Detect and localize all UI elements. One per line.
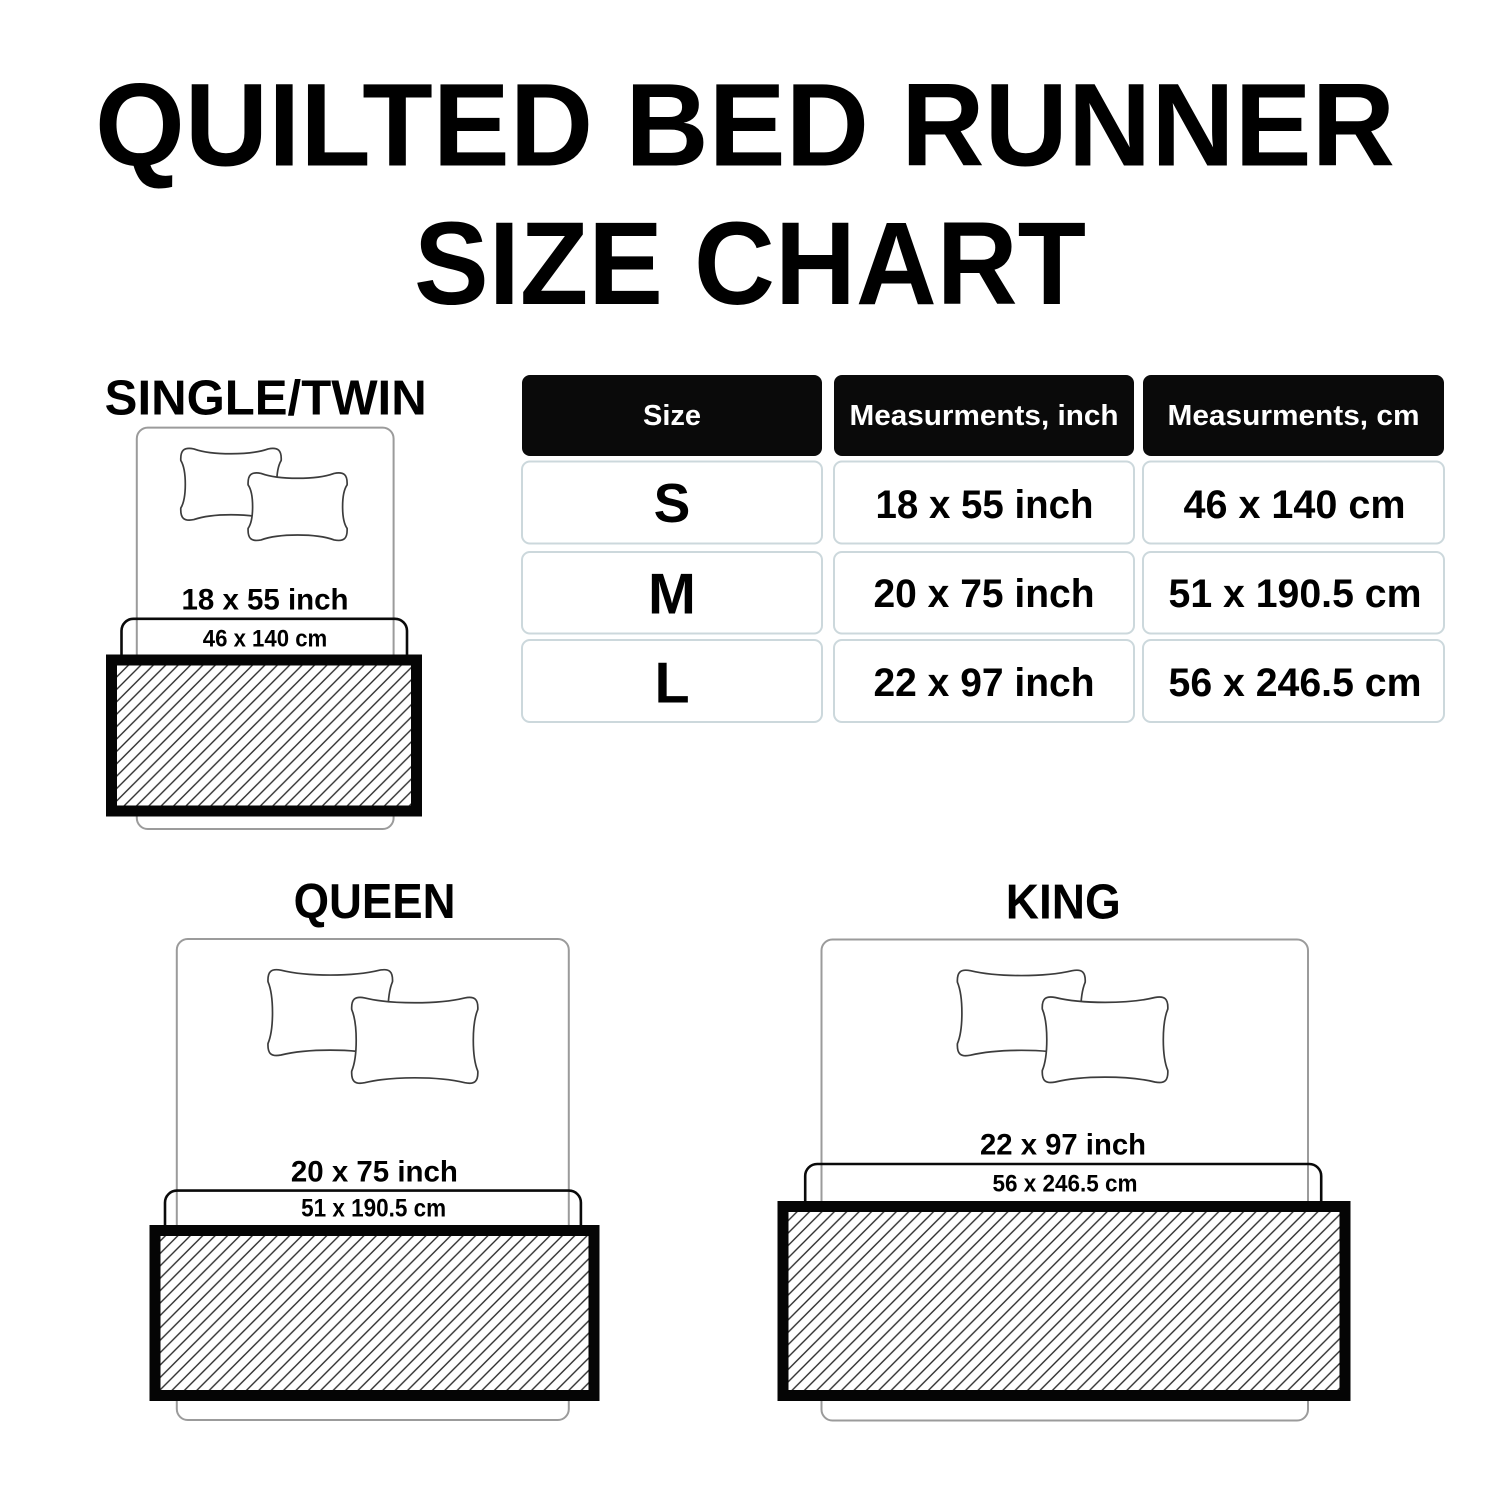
svg-text:18 x 55 inch: 18 x 55 inch — [876, 483, 1094, 527]
svg-text:M: M — [648, 563, 696, 627]
svg-text:22 x 97 inch: 22 x 97 inch — [980, 1129, 1146, 1162]
svg-text:QUILTED BED RUNNER: QUILTED BED RUNNER — [95, 60, 1395, 192]
svg-text:L: L — [654, 652, 689, 716]
svg-text:56 x 246.5 cm: 56 x 246.5 cm — [993, 1171, 1138, 1198]
svg-text:Size: Size — [643, 400, 701, 432]
svg-text:18 x 55 inch: 18 x 55 inch — [182, 584, 349, 617]
svg-text:SINGLE/TWIN: SINGLE/TWIN — [105, 372, 427, 426]
svg-text:56 x 246.5 cm: 56 x 246.5 cm — [1169, 661, 1422, 705]
svg-text:51 x 190.5 cm: 51 x 190.5 cm — [301, 1195, 446, 1223]
svg-text:S: S — [654, 472, 691, 534]
svg-text:51 x 190.5 cm: 51 x 190.5 cm — [1169, 572, 1422, 616]
svg-text:KING: KING — [1006, 876, 1121, 930]
svg-text:SIZE CHART: SIZE CHART — [414, 198, 1086, 330]
svg-text:46 x 140 cm: 46 x 140 cm — [1184, 483, 1406, 527]
svg-text:Measurments, inch: Measurments, inch — [850, 400, 1119, 432]
svg-text:20 x 75 inch: 20 x 75 inch — [291, 1156, 458, 1189]
svg-text:22 x 97 inch: 22 x 97 inch — [874, 661, 1095, 705]
svg-text:QUEEN: QUEEN — [294, 875, 456, 929]
svg-text:46 x 140 cm: 46 x 140 cm — [203, 626, 328, 653]
svg-text:20 x 75 inch: 20 x 75 inch — [874, 572, 1095, 616]
svg-text:Measurments, cm: Measurments, cm — [1168, 400, 1420, 432]
